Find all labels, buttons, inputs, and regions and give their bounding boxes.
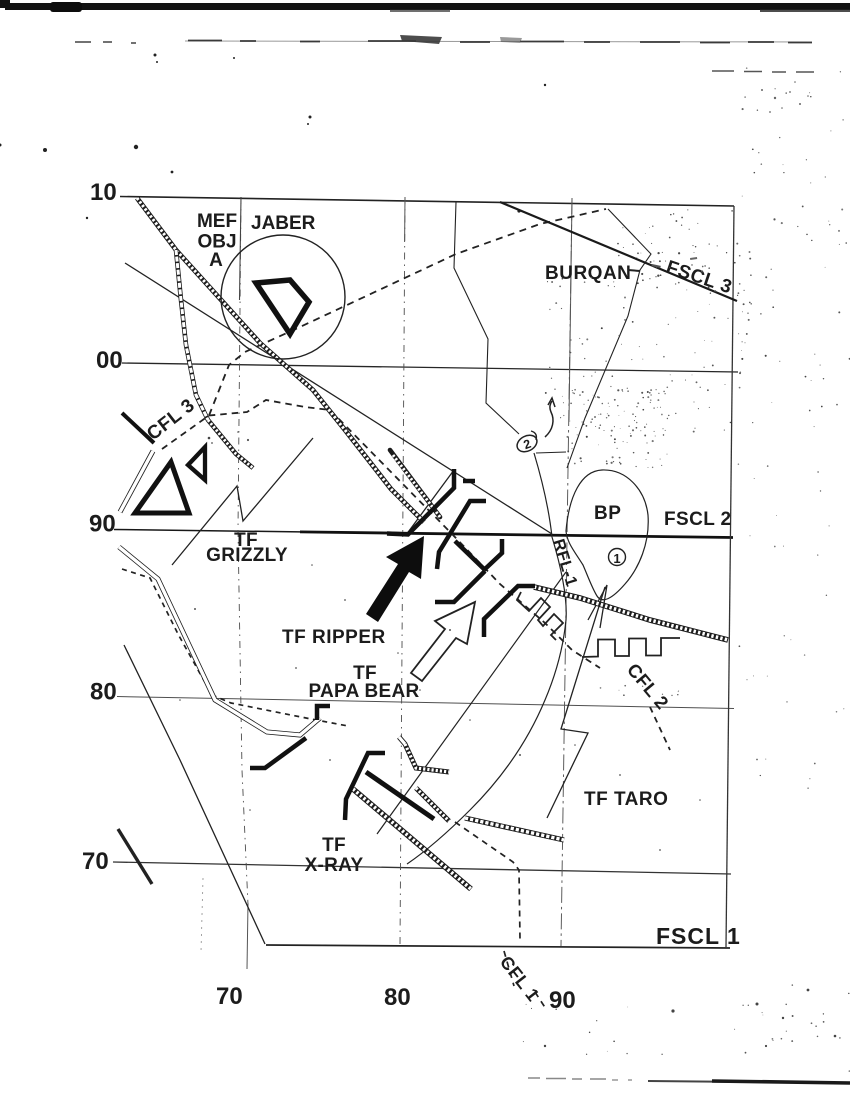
svg-text:90: 90	[89, 511, 116, 538]
svg-text:1: 1	[613, 551, 620, 566]
svg-text:TF: TF	[322, 835, 346, 856]
svg-text:BURQAN: BURQAN	[545, 263, 631, 284]
svg-text:X-RAY: X-RAY	[305, 855, 364, 876]
svg-text:80: 80	[90, 679, 117, 706]
svg-text:GRIZZLY: GRIZZLY	[206, 545, 288, 566]
svg-text:BP: BP	[594, 503, 621, 524]
svg-text:MEF: MEF	[197, 211, 237, 232]
svg-text:70: 70	[216, 983, 243, 1010]
svg-text:FSCL 1: FSCL 1	[656, 923, 741, 949]
svg-text:FSCL 2: FSCL 2	[664, 509, 732, 530]
svg-text:PAPA BEAR: PAPA BEAR	[308, 681, 419, 702]
svg-text:00: 00	[96, 347, 123, 374]
svg-text:80: 80	[384, 984, 411, 1011]
svg-text:10: 10	[90, 179, 117, 206]
svg-text:90: 90	[549, 987, 576, 1014]
svg-text:A: A	[209, 250, 223, 271]
svg-text:TF RIPPER: TF RIPPER	[282, 627, 386, 648]
svg-text:70: 70	[82, 848, 109, 875]
svg-text:TF TARO: TF TARO	[584, 789, 668, 810]
svg-text:JABER: JABER	[251, 213, 316, 234]
